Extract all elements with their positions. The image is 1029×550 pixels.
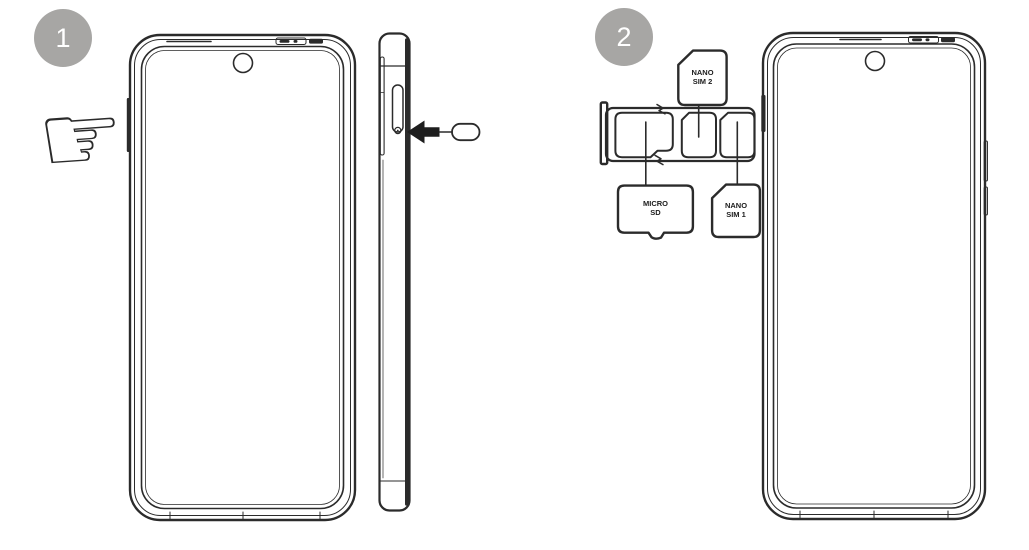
eject-arrow-icon <box>407 121 440 144</box>
pointing-hand-icon: ☞ <box>19 84 144 192</box>
top-sensor-dot <box>294 40 298 43</box>
tray-body <box>606 108 755 161</box>
phone-frame-line <box>135 40 351 516</box>
phone-screen <box>142 47 344 509</box>
top-sensor-pill <box>912 38 922 41</box>
top-sensor-dot <box>926 38 930 41</box>
micro-sd-label: MICRO SD <box>618 194 693 222</box>
punch-hole-camera <box>234 54 253 73</box>
tray-slot-micro-sd <box>615 113 672 157</box>
eject-tool-handle <box>452 124 480 140</box>
eject-pin-hole-dot <box>397 130 399 132</box>
phone-screen-inner-line <box>146 51 340 505</box>
phone-frame-line <box>768 38 981 515</box>
diagram-artwork <box>0 0 1029 550</box>
front-glass-edge-strip <box>380 57 384 155</box>
top-mic-bar <box>309 39 323 44</box>
sim-eject-tool <box>407 121 480 144</box>
phone-body <box>763 33 985 519</box>
nano-sim-1-label: NANO SIM 1 <box>712 196 760 224</box>
step1-phone-front <box>127 35 355 520</box>
nano-sim-2-label: NANO SIM 2 <box>678 60 727 94</box>
step2-number: 2 <box>616 22 631 53</box>
phone-screen-inner-line <box>778 48 971 504</box>
step1-number-badge: 1 <box>34 9 92 67</box>
top-sensor-pill <box>280 40 290 43</box>
sim-tray-slot-mark <box>761 95 765 132</box>
step1-number: 1 <box>55 23 70 54</box>
punch-hole-camera <box>866 52 885 71</box>
top-mic-bar <box>941 37 955 42</box>
instruction-diagram: 1 2 ☞ NANO SIM 2 MICRO SD NANO SIM 1 <box>0 0 1029 550</box>
phone-screen <box>774 44 975 508</box>
step2-sim-tray <box>601 103 755 186</box>
phone-body <box>130 35 355 520</box>
step2-number-badge: 2 <box>595 8 653 66</box>
sim-tray-outline-pill <box>393 85 404 132</box>
step1-phone-side <box>380 34 410 511</box>
step2-phone-front <box>761 33 987 519</box>
